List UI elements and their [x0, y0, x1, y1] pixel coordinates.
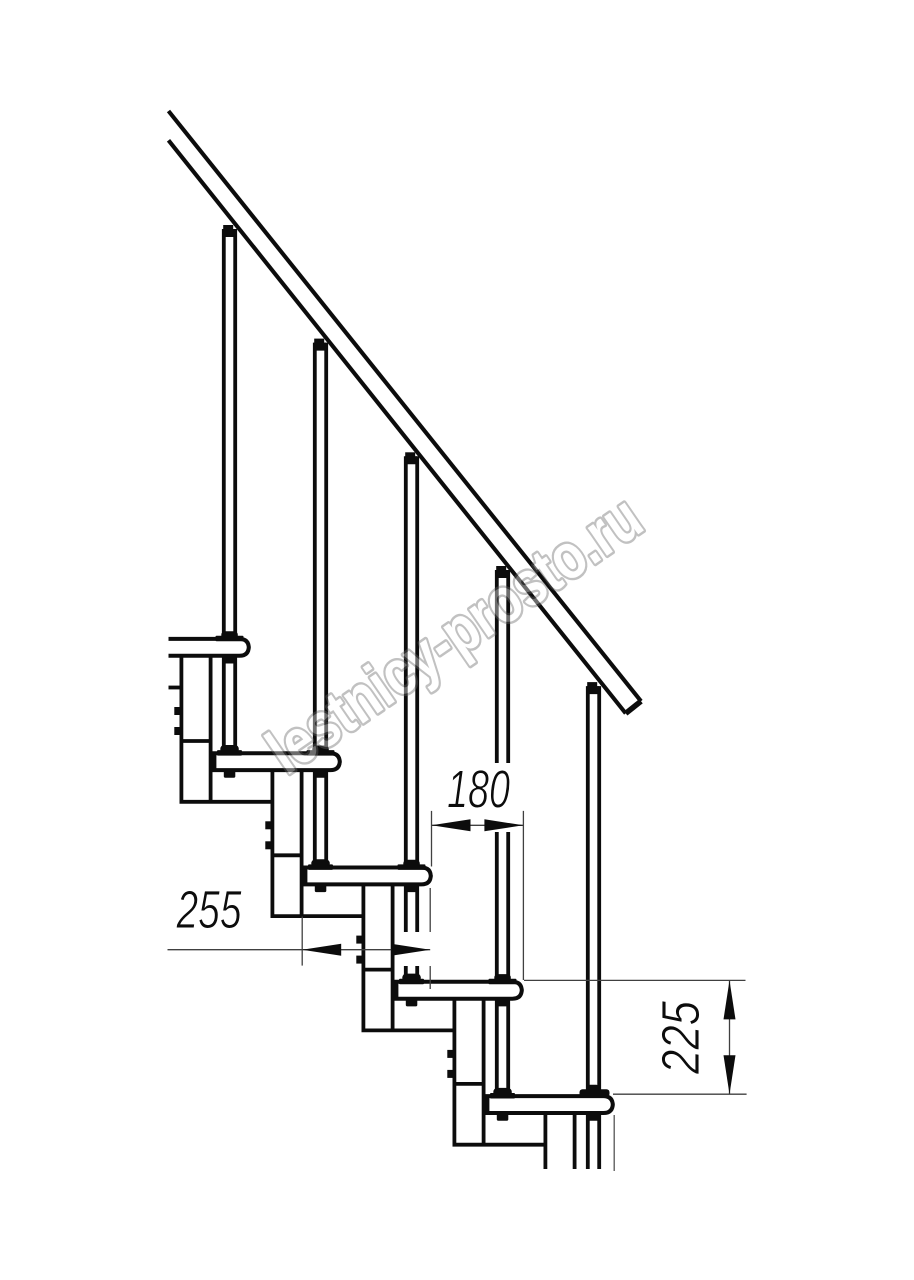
svg-text:255: 255 [176, 880, 242, 940]
svg-text:180: 180 [447, 760, 510, 820]
svg-text:225: 225 [651, 1000, 711, 1075]
